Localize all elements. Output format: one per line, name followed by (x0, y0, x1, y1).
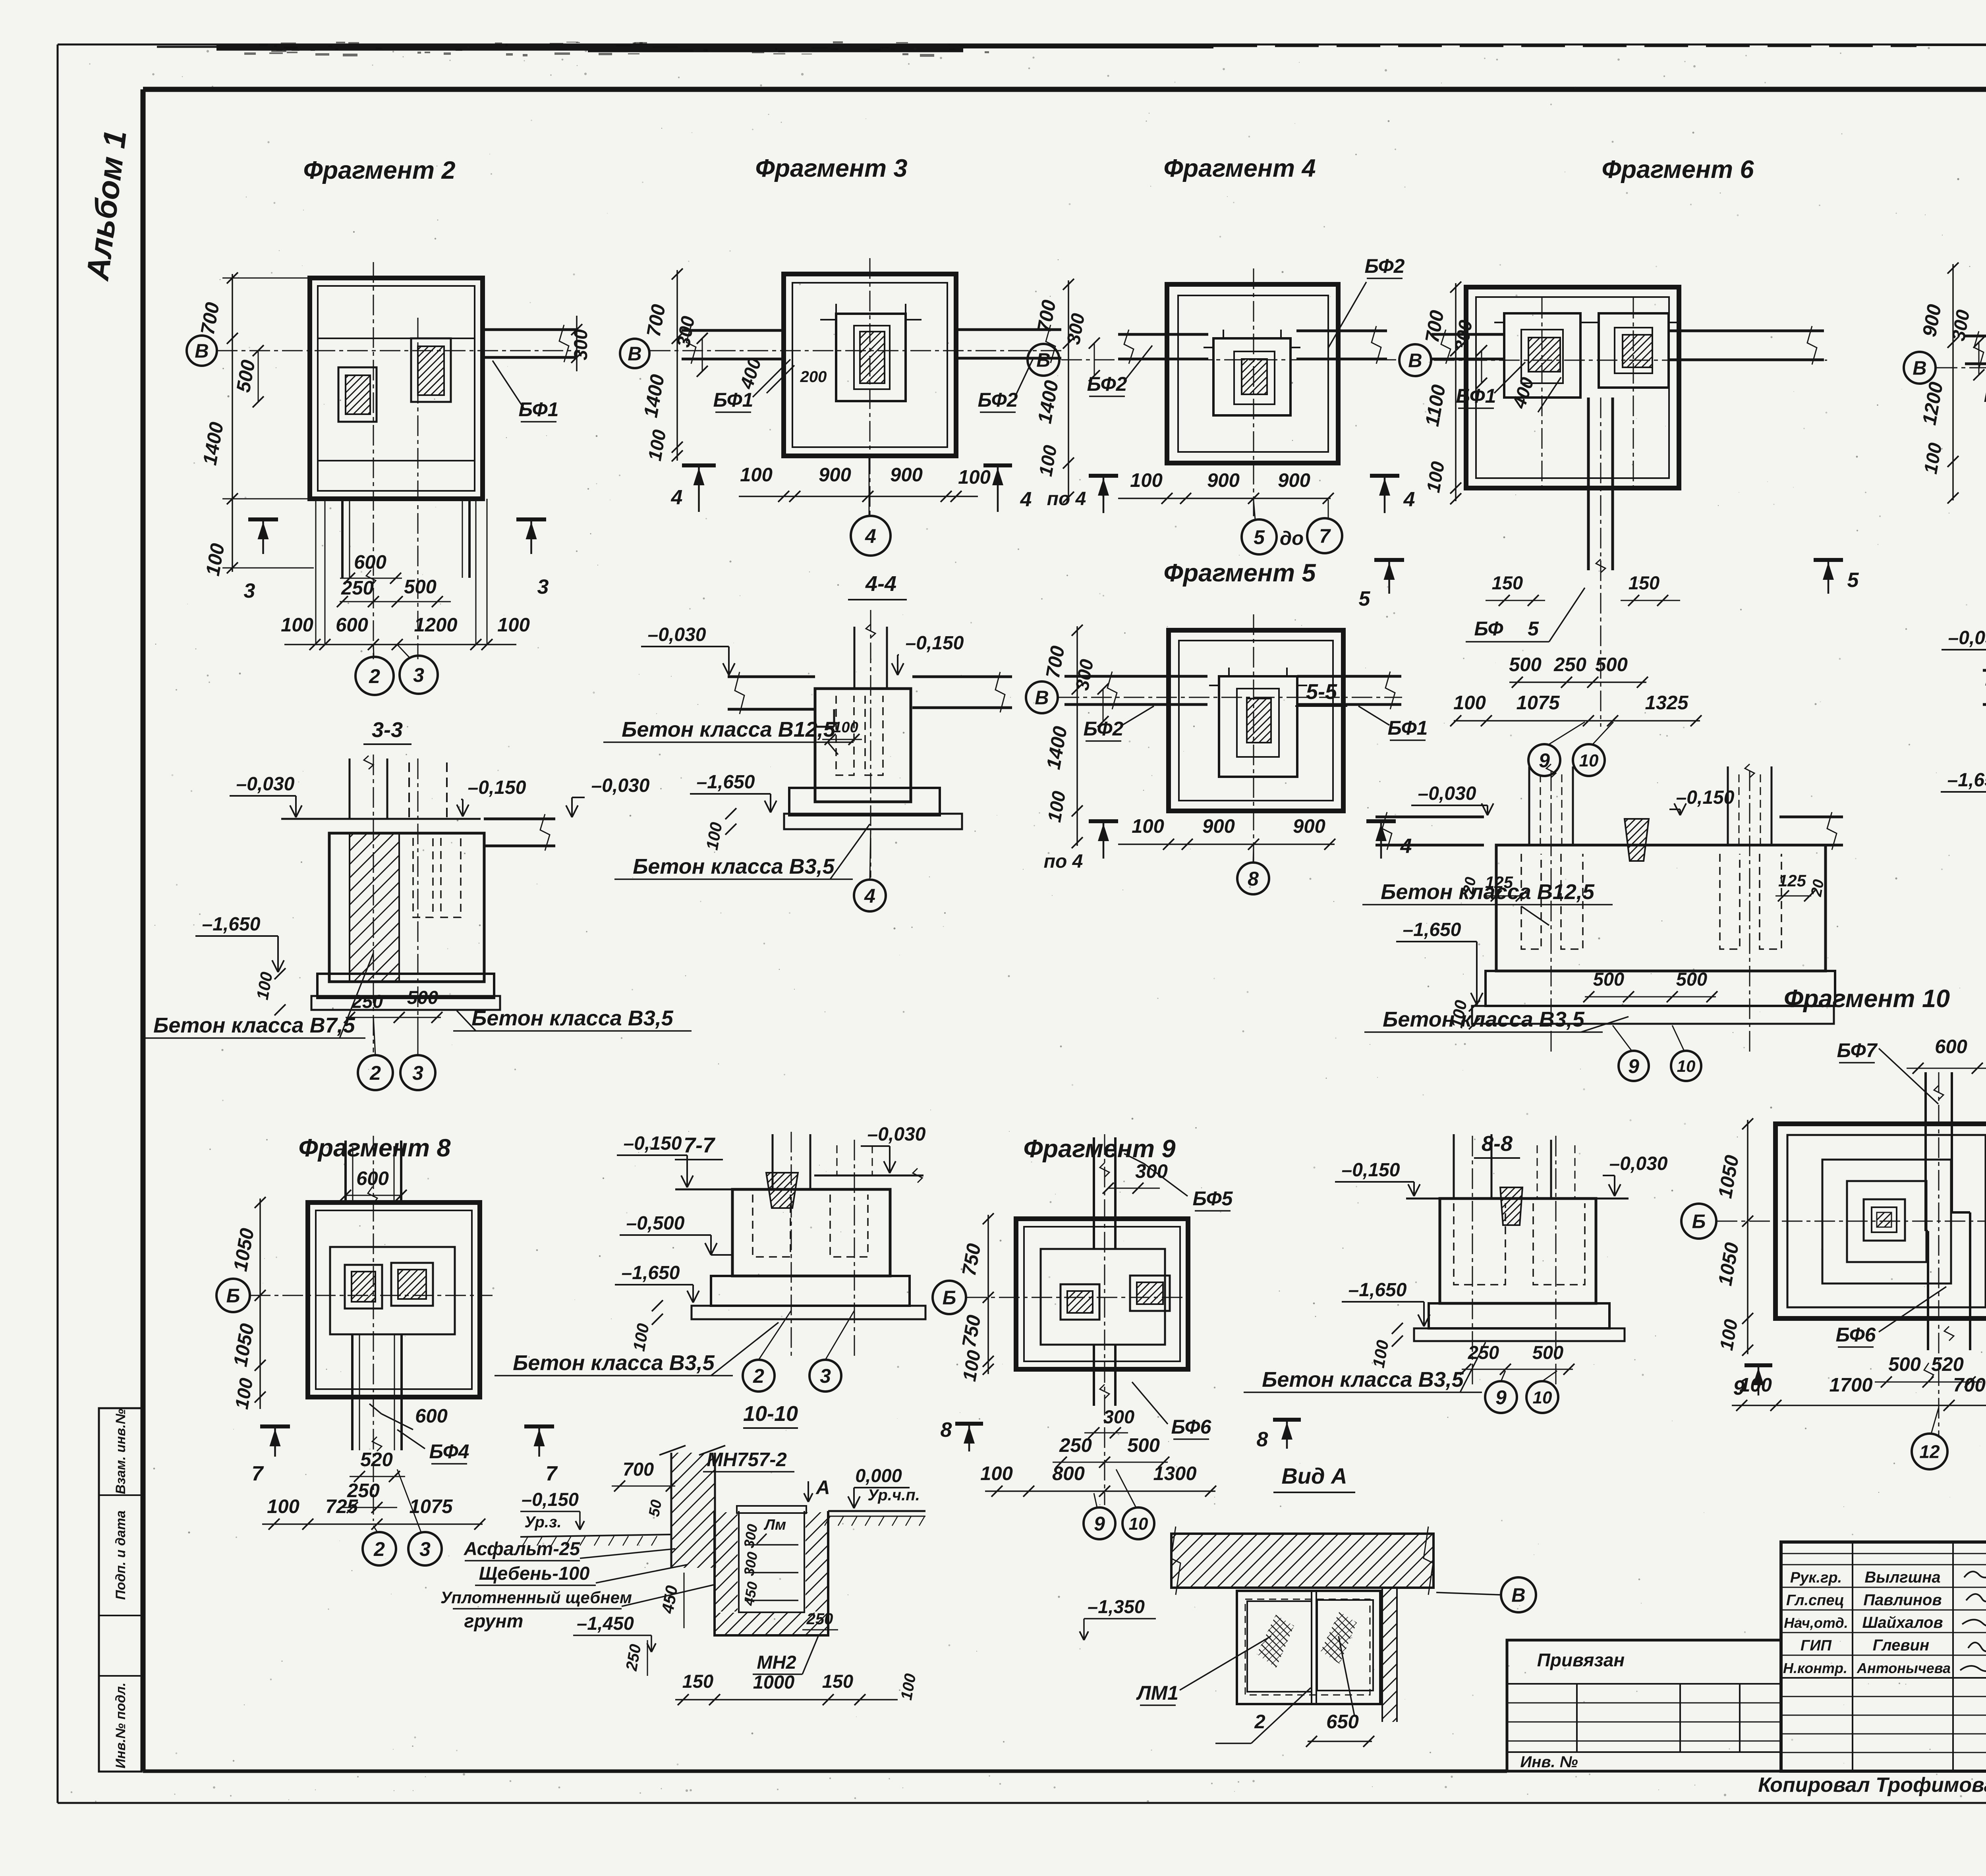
svg-text:Фрагмент 2: Фрагмент 2 (303, 156, 455, 184)
svg-text:150: 150 (1629, 572, 1660, 593)
svg-text:9: 9 (1733, 1376, 1745, 1399)
svg-text:4: 4 (865, 525, 876, 547)
svg-text:Взам. инв.№: Взам. инв.№ (113, 1409, 128, 1494)
svg-text:9: 9 (1094, 1513, 1105, 1535)
svg-text:0,000: 0,000 (855, 1465, 902, 1486)
svg-text:3: 3 (820, 1365, 831, 1387)
svg-text:Фрагмент 8: Фрагмент 8 (298, 1134, 450, 1162)
svg-text:7: 7 (252, 1462, 264, 1485)
svg-text:–1,650: –1,650 (1348, 1280, 1407, 1301)
svg-text:250: 250 (806, 1610, 833, 1628)
svg-text:9: 9 (1495, 1386, 1507, 1409)
svg-text:Инв. №: Инв. № (1520, 1753, 1578, 1771)
svg-text:БФ6: БФ6 (1171, 1416, 1212, 1438)
svg-text:250: 250 (1059, 1435, 1092, 1456)
svg-text:4: 4 (1020, 488, 1032, 511)
svg-text:10: 10 (1579, 751, 1599, 770)
svg-text:Шайхалов: Шайхалов (1862, 1614, 1943, 1631)
svg-text:100: 100 (281, 614, 313, 636)
svg-text:10: 10 (1533, 1388, 1552, 1407)
svg-text:Инв.№ подл.: Инв.№ подл. (113, 1683, 128, 1769)
svg-text:–0,030: –0,030 (1418, 783, 1476, 804)
svg-text:9: 9 (1628, 1055, 1639, 1077)
svg-text:–0,150: –0,150 (624, 1133, 682, 1154)
svg-text:МН757-2: МН757-2 (707, 1449, 787, 1471)
svg-text:–1,650: –1,650 (622, 1262, 680, 1283)
svg-text:3-3: 3-3 (372, 718, 403, 742)
svg-text:–0,030: –0,030 (648, 624, 706, 645)
svg-text:5: 5 (1528, 618, 1539, 640)
svg-text:3: 3 (413, 664, 424, 686)
svg-text:500: 500 (1676, 969, 1707, 990)
svg-text:–0,030: –0,030 (236, 774, 295, 795)
svg-text:–0,030: –0,030 (591, 775, 650, 796)
svg-text:4: 4 (864, 885, 875, 907)
svg-text:250: 250 (1553, 654, 1586, 676)
svg-text:3: 3 (412, 1062, 423, 1084)
svg-text:Ур.ч.п.: Ур.ч.п. (867, 1486, 920, 1504)
svg-text:3: 3 (419, 1538, 431, 1560)
svg-text:Бетон класса В3,5: Бетон класса В3,5 (513, 1351, 715, 1375)
svg-text:Антонычева: Антонычева (1857, 1660, 1951, 1676)
svg-text:10: 10 (1677, 1057, 1696, 1075)
svg-text:–0,150: –0,150 (906, 633, 964, 654)
svg-text:Фрагмент 3: Фрагмент 3 (755, 154, 907, 182)
svg-text:БФ4: БФ4 (429, 1440, 469, 1463)
svg-text:100: 100 (980, 1463, 1013, 1484)
svg-text:Привязан: Привязан (1537, 1650, 1625, 1670)
svg-text:БФ6: БФ6 (1836, 1324, 1876, 1346)
svg-text:500: 500 (1127, 1435, 1160, 1456)
svg-text:300: 300 (570, 329, 591, 360)
svg-text:Вылгшна: Вылгшна (1864, 1569, 1940, 1586)
svg-text:900: 900 (819, 464, 851, 486)
svg-text:150: 150 (1492, 572, 1523, 593)
svg-text:Фрагмент 6: Фрагмент 6 (1602, 156, 1754, 183)
svg-text:по 4: по 4 (1044, 851, 1083, 872)
svg-text:1700: 1700 (1829, 1374, 1872, 1396)
svg-text:600: 600 (336, 614, 368, 636)
svg-text:8: 8 (1257, 1428, 1268, 1451)
svg-text:100: 100 (740, 464, 773, 486)
svg-text:В: В (195, 341, 209, 362)
svg-text:600: 600 (1935, 1036, 1967, 1058)
svg-text:2: 2 (1254, 1711, 1265, 1733)
svg-text:Фрагмент 9: Фрагмент 9 (1023, 1135, 1175, 1163)
svg-text:–0,030: –0,030 (1948, 627, 1986, 648)
svg-text:Бетон класса В3,5: Бетон класса В3,5 (1262, 1368, 1464, 1392)
svg-text:по 4: по 4 (1047, 488, 1086, 510)
svg-text:900: 900 (890, 464, 923, 486)
svg-text:7: 7 (546, 1462, 558, 1485)
svg-text:3: 3 (244, 579, 255, 602)
svg-text:МН2: МН2 (757, 1652, 796, 1673)
svg-text:Б: Б (943, 1287, 956, 1309)
svg-text:125: 125 (1778, 871, 1806, 890)
svg-text:Б: Б (226, 1285, 240, 1307)
svg-text:1075: 1075 (409, 1496, 453, 1517)
svg-text:ГИП: ГИП (1801, 1637, 1832, 1654)
svg-text:А: А (815, 1477, 830, 1498)
svg-text:700: 700 (623, 1459, 654, 1480)
svg-text:725: 725 (325, 1496, 358, 1517)
svg-text:100: 100 (833, 719, 858, 736)
svg-text:300: 300 (1103, 1406, 1134, 1427)
svg-text:БФ: БФ (1474, 618, 1503, 640)
svg-text:900: 900 (1278, 470, 1310, 491)
svg-text:500: 500 (1509, 654, 1542, 676)
svg-text:4-4: 4-4 (865, 572, 896, 596)
svg-text:1200: 1200 (414, 614, 457, 636)
svg-text:1075: 1075 (1516, 692, 1560, 714)
svg-text:200: 200 (800, 368, 827, 386)
svg-text:500: 500 (1888, 1354, 1921, 1375)
svg-text:Фрагмент 10: Фрагмент 10 (1784, 985, 1950, 1013)
svg-text:5-5: 5-5 (1306, 680, 1337, 704)
svg-text:3: 3 (537, 575, 549, 598)
svg-text:300: 300 (1135, 1161, 1168, 1182)
svg-text:Н.контр.: Н.контр. (1783, 1660, 1847, 1676)
svg-text:100: 100 (1453, 692, 1486, 714)
svg-text:грунт: грунт (464, 1610, 524, 1631)
svg-text:Гл.спец: Гл.спец (1786, 1592, 1844, 1609)
svg-text:7: 7 (1319, 525, 1331, 547)
svg-text:10-10: 10-10 (743, 1402, 798, 1426)
svg-text:1000: 1000 (753, 1671, 795, 1693)
svg-text:Нач,отд.: Нач,отд. (1784, 1615, 1848, 1631)
svg-text:БФ1: БФ1 (519, 398, 559, 421)
svg-text:В: В (1035, 687, 1049, 709)
svg-text:600: 600 (354, 552, 386, 573)
svg-text:1325: 1325 (1645, 692, 1688, 714)
svg-text:Бетон класса В3,5: Бетон класса В3,5 (633, 855, 835, 878)
svg-text:–1,650: –1,650 (202, 914, 261, 935)
svg-text:Подп. и дата: Подп. и дата (113, 1510, 128, 1600)
svg-text:–0,030: –0,030 (867, 1124, 926, 1145)
svg-text:8: 8 (941, 1419, 952, 1442)
svg-text:100: 100 (958, 467, 991, 488)
svg-text:В: В (628, 344, 641, 365)
svg-text:Щебень-100: Щебень-100 (479, 1563, 590, 1584)
svg-text:–1,350: –1,350 (1088, 1596, 1145, 1617)
svg-text:–1,650: –1,650 (697, 772, 755, 793)
svg-text:–1,650: –1,650 (1403, 919, 1461, 940)
svg-text:Бетон класса В7,5: Бетон класса В7,5 (153, 1013, 355, 1037)
svg-text:БФ1: БФ1 (1388, 717, 1428, 739)
svg-text:Фрагмент 5: Фрагмент 5 (1163, 559, 1316, 587)
svg-text:500: 500 (1595, 654, 1628, 676)
svg-text:100: 100 (497, 614, 530, 636)
svg-text:100: 100 (1130, 470, 1163, 491)
svg-text:500: 500 (404, 576, 437, 598)
svg-text:5: 5 (1847, 569, 1859, 592)
svg-text:12: 12 (1919, 1442, 1940, 1462)
svg-text:900: 900 (1293, 816, 1325, 837)
svg-text:4: 4 (671, 486, 683, 509)
svg-text:900: 900 (1202, 816, 1235, 837)
svg-text:БФ1: БФ1 (713, 389, 753, 411)
svg-text:1300: 1300 (1153, 1463, 1196, 1484)
svg-text:Фрагмент 4: Фрагмент 4 (1163, 154, 1316, 182)
svg-text:В: В (1913, 358, 1926, 379)
svg-text:Вид А: Вид А (1281, 1463, 1347, 1488)
svg-text:Павлинов: Павлинов (1863, 1591, 1942, 1609)
svg-text:–0,030: –0,030 (1609, 1153, 1668, 1174)
svg-text:520: 520 (1931, 1354, 1964, 1375)
svg-text:–0,150: –0,150 (1342, 1160, 1400, 1181)
svg-text:500: 500 (407, 987, 438, 1008)
svg-text:600: 600 (415, 1405, 448, 1427)
svg-text:250: 250 (341, 577, 374, 599)
svg-text:520: 520 (360, 1449, 393, 1471)
svg-text:Уплотненный щебнем: Уплотненный щебнем (440, 1588, 632, 1607)
svg-text:Бетон класса В3,5: Бетон класса В3,5 (471, 1006, 674, 1030)
svg-text:Лм: Лм (763, 1517, 786, 1533)
svg-text:Бетон класса В12,5: Бетон класса В12,5 (1381, 880, 1595, 904)
svg-text:Рук.гр.: Рук.гр. (1790, 1569, 1842, 1586)
svg-text:150: 150 (682, 1671, 713, 1692)
svg-text:–1,450: –1,450 (577, 1613, 634, 1634)
svg-text:100: 100 (267, 1496, 299, 1517)
svg-text:5: 5 (1359, 587, 1371, 610)
svg-text:БФ1: БФ1 (1984, 384, 1986, 406)
svg-text:В: В (1036, 350, 1050, 371)
svg-text:150: 150 (822, 1671, 853, 1692)
svg-text:4: 4 (1403, 488, 1415, 511)
svg-text:10: 10 (1129, 1514, 1148, 1534)
svg-text:–1,650: –1,650 (1947, 770, 1986, 791)
svg-text:800: 800 (1052, 1463, 1085, 1484)
svg-text:5: 5 (1254, 526, 1265, 548)
svg-text:2: 2 (753, 1365, 764, 1387)
svg-text:900: 900 (1207, 470, 1240, 491)
svg-text:Ур.з.: Ур.з. (524, 1513, 561, 1531)
svg-text:50: 50 (646, 1498, 665, 1518)
svg-text:2: 2 (369, 665, 380, 687)
svg-text:В: В (1408, 350, 1422, 372)
svg-text:2: 2 (369, 1062, 381, 1084)
svg-text:до: до (1280, 528, 1304, 549)
svg-text:БФ7: БФ7 (1837, 1039, 1878, 1062)
svg-text:В: В (1511, 1585, 1525, 1606)
svg-text:7-7: 7-7 (684, 1133, 716, 1157)
svg-text:БФ2: БФ2 (1365, 255, 1405, 277)
svg-text:Глевин: Глевин (1873, 1637, 1929, 1654)
svg-text:8-8: 8-8 (1482, 1132, 1513, 1156)
svg-text:2: 2 (373, 1538, 385, 1560)
svg-text:–0,500: –0,500 (626, 1213, 685, 1234)
svg-text:БФ2: БФ2 (978, 389, 1018, 411)
svg-text:Б: Б (1692, 1211, 1706, 1233)
svg-text:Бетон класса В12,5: Бетон класса В12,5 (622, 718, 836, 741)
svg-text:500: 500 (1532, 1342, 1563, 1363)
svg-text:9: 9 (1539, 749, 1550, 772)
svg-text:–0,150: –0,150 (522, 1489, 579, 1510)
svg-text:–0,150: –0,150 (468, 777, 526, 798)
svg-text:Копировал Трофимова: Копировал Трофимова (1758, 1774, 1986, 1797)
svg-text:100: 100 (1132, 816, 1164, 837)
svg-text:Асфальт-25: Асфальт-25 (464, 1538, 580, 1559)
svg-text:600: 600 (356, 1168, 389, 1189)
svg-text:250: 250 (352, 991, 383, 1012)
svg-text:700: 700 (1953, 1374, 1986, 1396)
svg-text:Бетон класса В3,5: Бетон класса В3,5 (1383, 1007, 1585, 1031)
svg-text:ЛМ1: ЛМ1 (1136, 1682, 1178, 1704)
svg-text:500: 500 (1593, 969, 1624, 990)
svg-text:БФ5: БФ5 (1193, 1187, 1233, 1210)
